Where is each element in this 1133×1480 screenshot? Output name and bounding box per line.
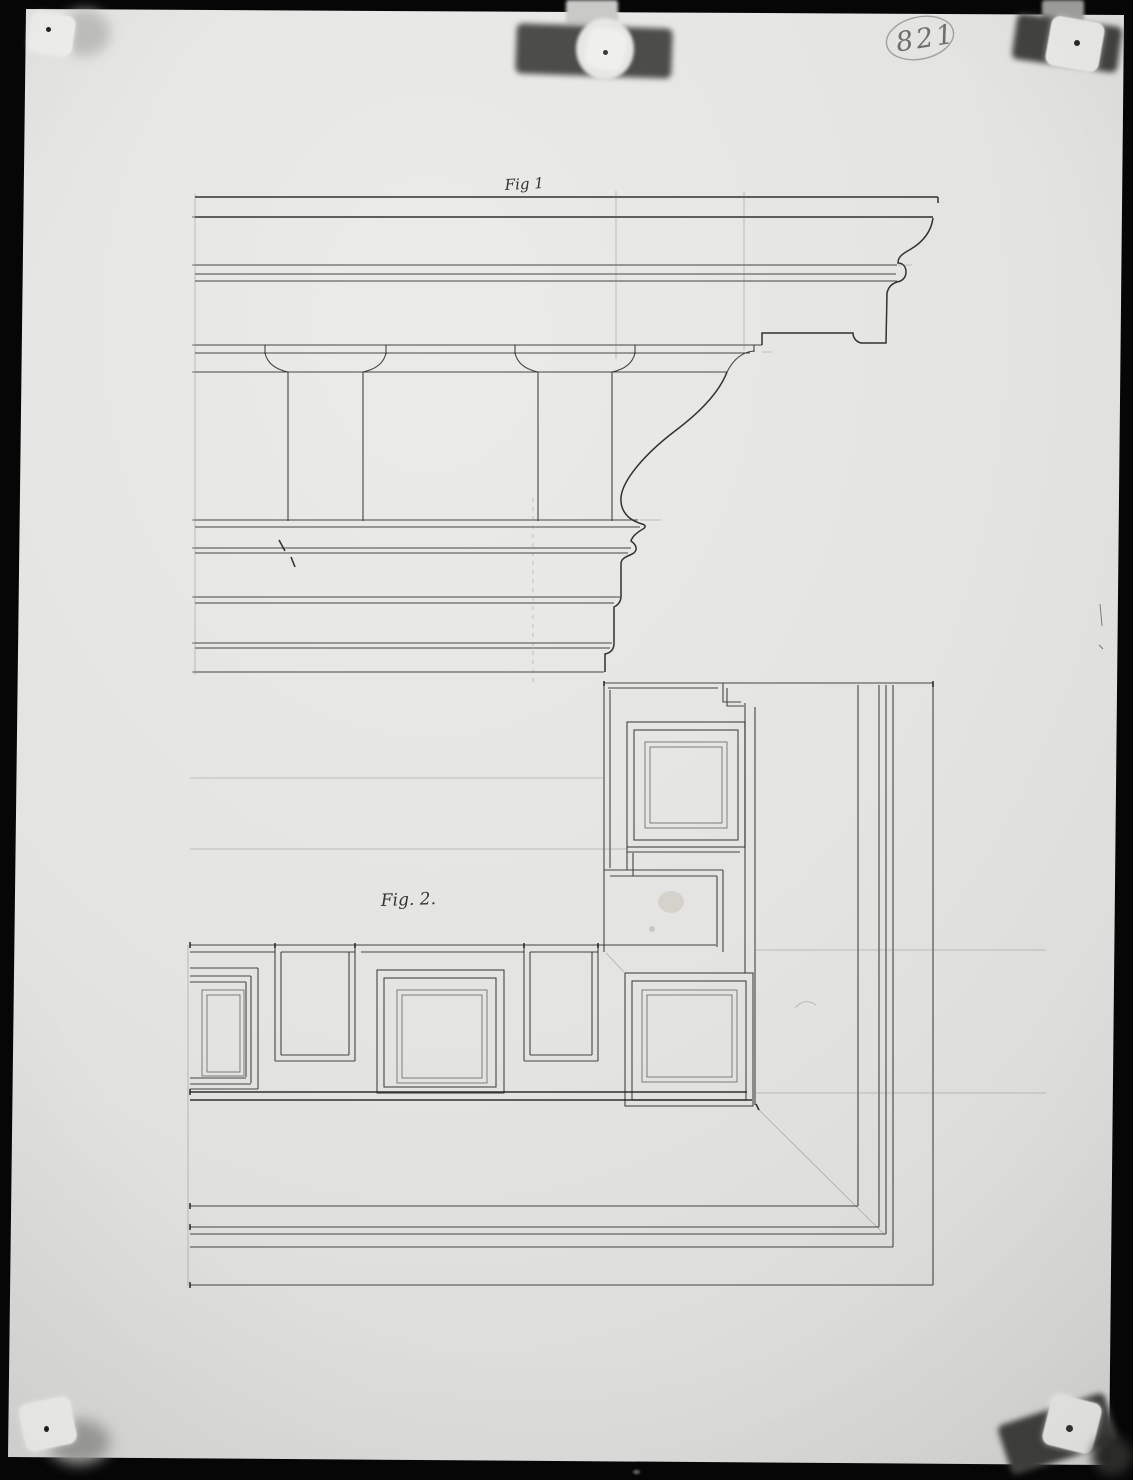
arm-coffer-innermost-frame — [650, 747, 722, 823]
corner-coffer-outer-frame — [625, 973, 753, 1106]
right-edge-defect-marks — [1099, 604, 1103, 649]
left-partial-coffer — [190, 968, 258, 1089]
left-coffer-innermost-frame — [207, 995, 240, 1072]
photograph-of-architectural-drawing: Fig 1 Fig. 2. 821 — [0, 0, 1133, 1480]
edge-scratch-mark — [633, 1470, 640, 1474]
fig2-faint-guides — [188, 778, 1046, 1286]
ink-wash-stain — [658, 891, 684, 913]
middle-coffer-innermost-frame — [402, 995, 482, 1078]
middle-coffer-inner-frame — [397, 990, 487, 1083]
arm-outline — [604, 683, 933, 1105]
corner-coffer-innermost-frame — [647, 995, 732, 1077]
soffit-border-frames — [190, 684, 933, 1285]
arm-coffer-inner-frame — [645, 742, 727, 828]
middle-coffer-frame-2 — [384, 978, 496, 1087]
pin-center-dot — [1066, 1425, 1073, 1432]
band-top-lines — [190, 945, 716, 952]
fig1-left-edge-ticks — [192, 217, 199, 672]
fig2-border-lines — [190, 684, 933, 1285]
crown-top-lines — [195, 197, 938, 217]
left-coffer-inner-frame — [202, 990, 244, 1076]
fig1-drawing — [192, 191, 938, 684]
pin-center-dot — [1074, 40, 1080, 46]
annotation-number: 821 — [894, 18, 959, 58]
fig1-label: Fig 1 — [503, 174, 544, 194]
fig2-meander-band — [190, 945, 884, 1234]
middle-coffer-outer-frame — [377, 970, 504, 1093]
console-caps — [265, 351, 754, 372]
fig2-ticks — [190, 681, 933, 1288]
corner-miter-line — [757, 1108, 884, 1234]
push-pin-head — [27, 11, 76, 57]
frieze-band-lines — [195, 345, 762, 372]
fig1-crown-molding — [195, 197, 938, 345]
arm-corner-nick — [606, 953, 624, 972]
fig2-drawing — [188, 681, 1046, 1288]
architrave-fillet-lines — [195, 520, 640, 672]
fig1-faint-guides — [195, 191, 912, 675]
fig2-construction-lines — [188, 681, 1046, 1288]
pin-center-dot — [46, 27, 51, 32]
dark-corner-deckle — [1092, 1436, 1132, 1476]
fig1-console-course — [195, 345, 762, 529]
fig1-architrave — [195, 520, 643, 672]
drawing-linework: Fig 1 Fig. 2. 821 — [0, 0, 1133, 1480]
pin-center-dot — [44, 1426, 49, 1432]
band-key-channels — [275, 945, 598, 1061]
crown-bead-lines — [195, 265, 897, 281]
fig2-meander-arm — [604, 683, 933, 1106]
console-bodies — [288, 372, 612, 521]
corner-coffer-inner-frame — [642, 990, 737, 1082]
pin-center-dot — [603, 50, 608, 55]
inventory-annotation: 821 — [882, 10, 958, 65]
small-stain-dot — [649, 926, 655, 932]
fig2-label: Fig. 2. — [379, 889, 436, 911]
console-scroll-profile — [621, 372, 727, 529]
architrave-right-profile — [605, 529, 643, 672]
